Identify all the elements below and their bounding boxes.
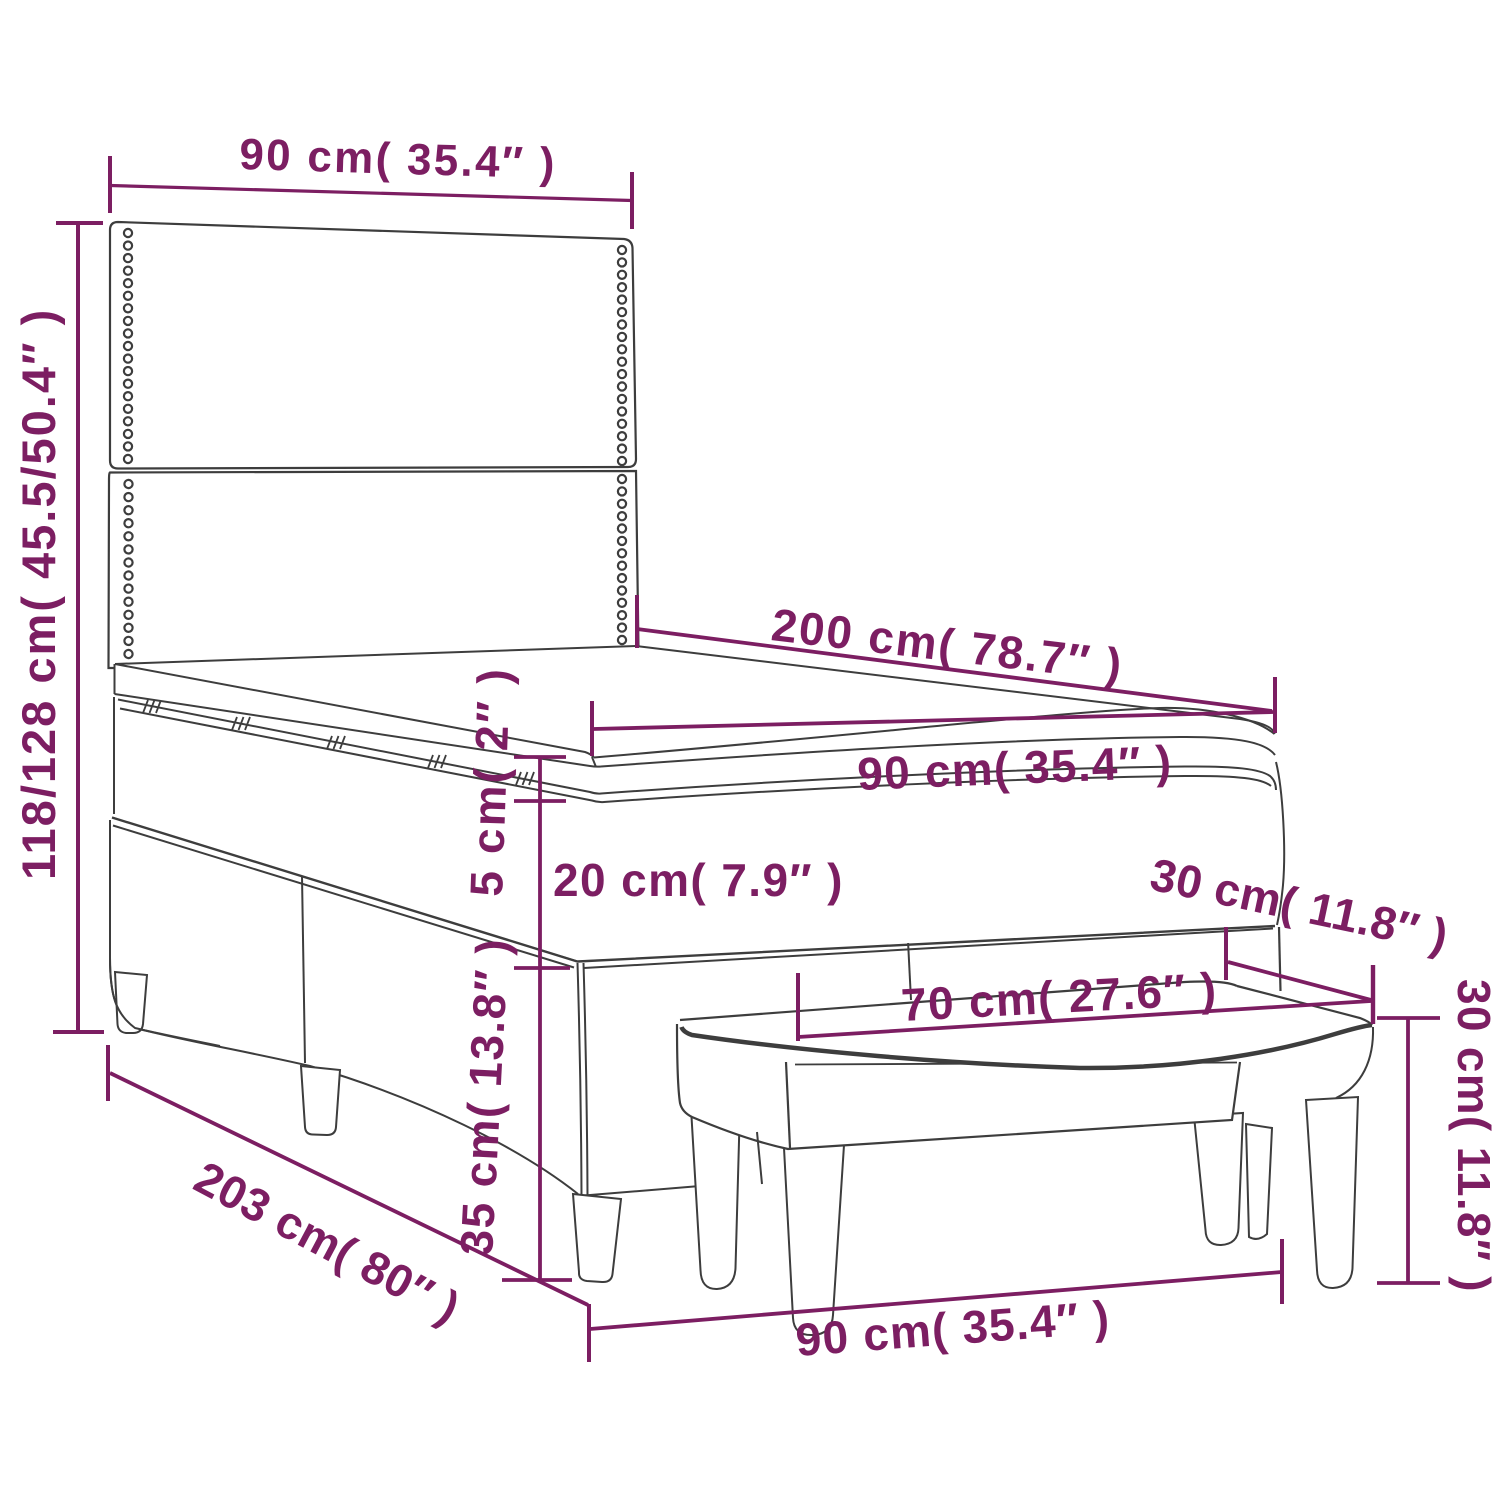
svg-text:5 cm( 2″ ): 5 cm( 2″ ) <box>460 666 520 897</box>
svg-text:90 cm( 35.4″ ): 90 cm( 35.4″ ) <box>239 130 558 188</box>
svg-text:20 cm( 7.9″ ): 20 cm( 7.9″ ) <box>553 854 844 906</box>
svg-text:30 cm( 11.8″ ): 30 cm( 11.8″ ) <box>1448 979 1500 1293</box>
svg-text:118/128 cm( 45.5/50.4″ ): 118/128 cm( 45.5/50.4″ ) <box>12 308 65 880</box>
